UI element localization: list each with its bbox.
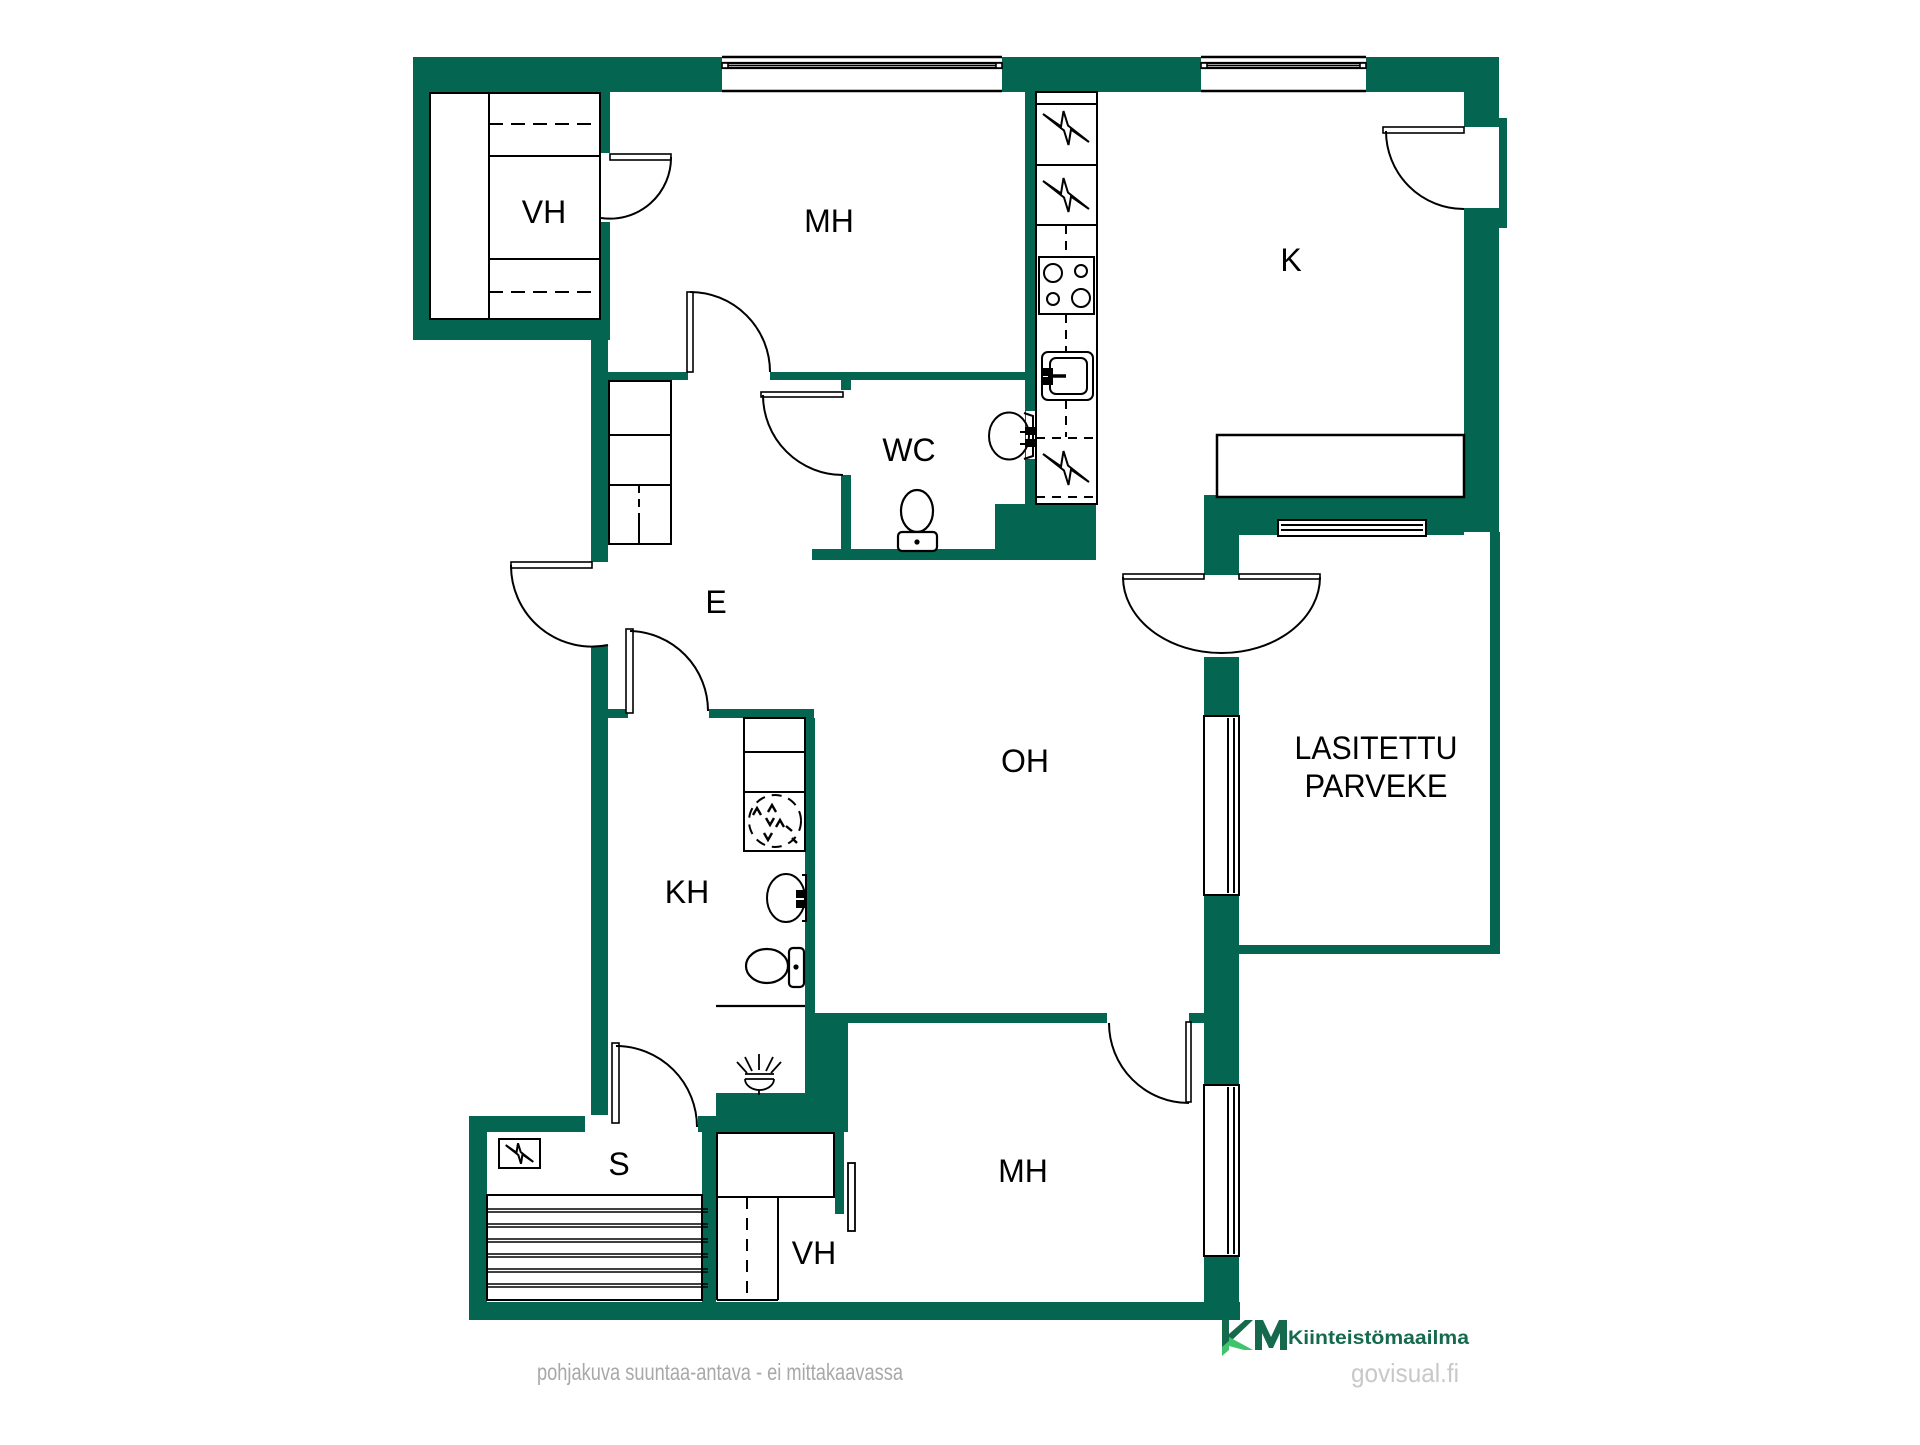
svg-text:K: K [1280, 242, 1301, 278]
svg-text:E: E [705, 584, 726, 620]
svg-text:PARVEKE: PARVEKE [1305, 768, 1448, 804]
svg-text:VH: VH [792, 1235, 836, 1271]
svg-text:LASITETTU: LASITETTU [1295, 730, 1458, 766]
svg-text:pohjakuva suuntaa-antava - ei: pohjakuva suuntaa-antava - ei mittakaava… [537, 1359, 903, 1385]
svg-text:S: S [608, 1146, 629, 1182]
svg-text:Kiinteistömaailma: Kiinteistömaailma [1288, 1327, 1469, 1349]
svg-text:WC: WC [882, 432, 935, 468]
svg-text:govisual.fi: govisual.fi [1351, 1358, 1459, 1388]
svg-text:OH: OH [1001, 743, 1049, 779]
svg-text:MH: MH [998, 1153, 1048, 1189]
svg-text:MH: MH [804, 203, 854, 239]
svg-text:VH: VH [522, 194, 566, 230]
svg-text:KH: KH [665, 874, 709, 910]
